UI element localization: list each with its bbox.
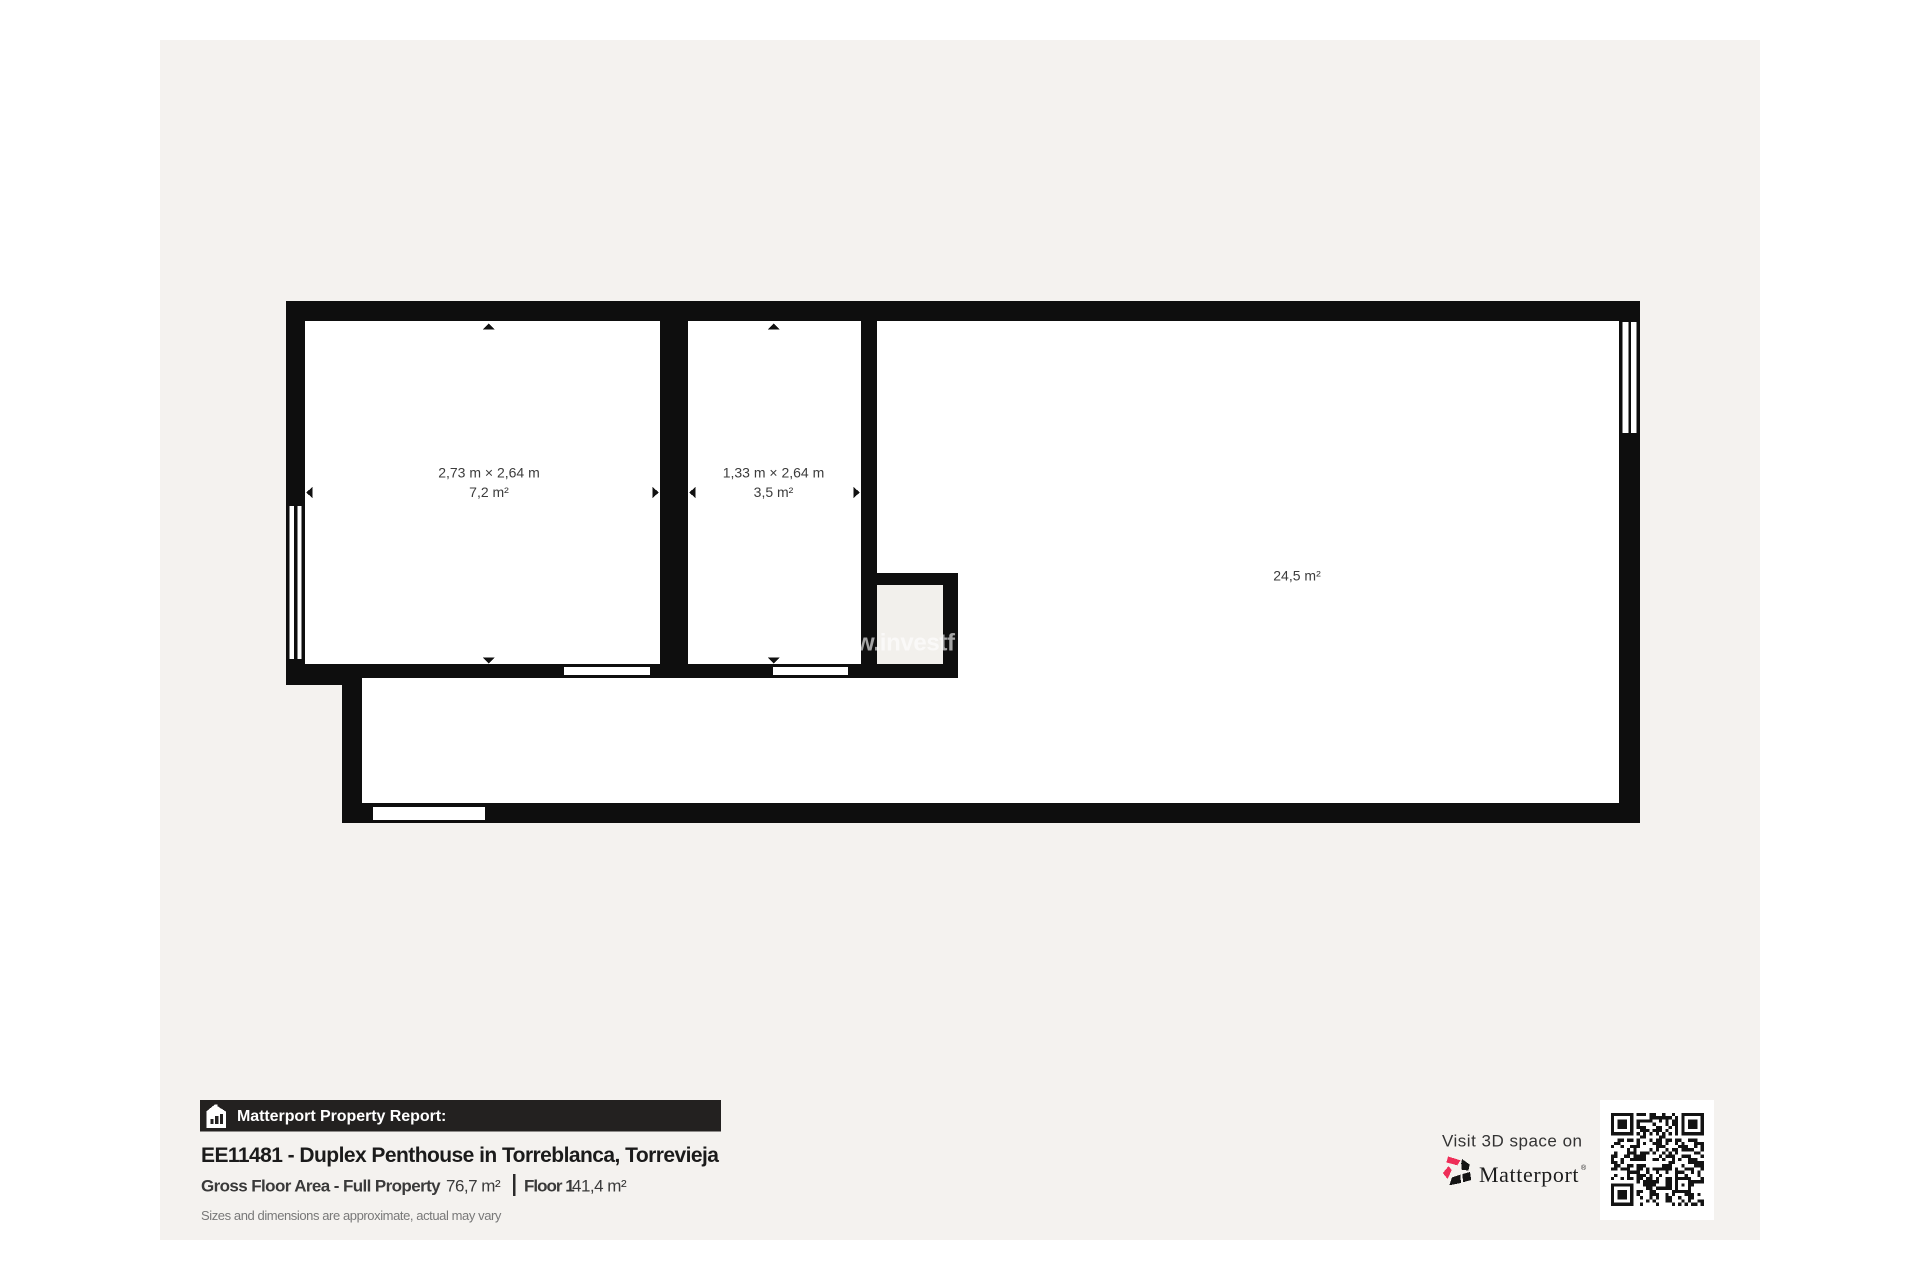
- svg-text:Floor 1: Floor 1: [524, 1177, 574, 1196]
- svg-text:2,73 m × 2,64 m: 2,73 m × 2,64 m: [438, 465, 540, 481]
- svg-text:Sizes and dimensions are appro: Sizes and dimensions are approximate, ac…: [201, 1208, 502, 1223]
- svg-text:w.investf: w.investf: [855, 630, 956, 657]
- svg-text:24,5 m²: 24,5 m²: [1273, 568, 1321, 584]
- svg-text:1,33 m × 2,64 m: 1,33 m × 2,64 m: [723, 465, 825, 481]
- svg-text:41,4 m²: 41,4 m²: [572, 1177, 627, 1196]
- svg-text:Gross Floor Area - Full Proper: Gross Floor Area - Full Property: [201, 1177, 441, 1196]
- svg-text:76,7 m²: 76,7 m²: [446, 1177, 501, 1196]
- svg-text:Matterport Property Report:: Matterport Property Report:: [237, 1108, 446, 1125]
- svg-text:7,2 m²: 7,2 m²: [469, 484, 509, 500]
- svg-text:EE11481 - Duplex Penthouse in: EE11481 - Duplex Penthouse in Torreblanc…: [201, 1144, 719, 1167]
- svg-text:Visit 3D space on: Visit 3D space on: [1442, 1132, 1582, 1151]
- svg-text:3,5 m²: 3,5 m²: [754, 484, 794, 500]
- svg-text:®: ®: [1581, 1164, 1587, 1172]
- svg-text:Matterport: Matterport: [1479, 1162, 1579, 1187]
